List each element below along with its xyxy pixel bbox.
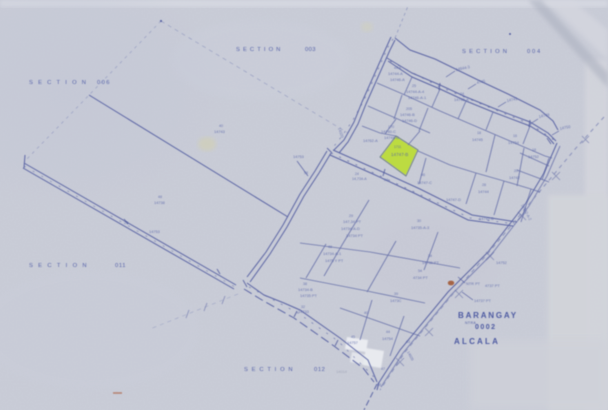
svg-text:SECTION: SECTION xyxy=(29,80,91,86)
svg-text:SECTION: SECTION xyxy=(462,49,510,55)
svg-text:30: 30 xyxy=(417,219,421,223)
svg-text:25: 25 xyxy=(412,84,416,88)
svg-text:44: 44 xyxy=(386,330,390,334)
svg-text:0002: 0002 xyxy=(475,324,497,331)
svg-text:46: 46 xyxy=(421,173,425,177)
svg-text:14734-A-1: 14734-A-1 xyxy=(323,251,341,256)
svg-text:14752: 14752 xyxy=(528,154,539,159)
svg-text:1711: 1711 xyxy=(394,145,401,149)
svg-text:205: 205 xyxy=(406,107,412,111)
svg-text:004: 004 xyxy=(527,49,542,55)
svg-text:14747-B: 14747-B xyxy=(391,152,408,157)
svg-text:1475 Y PT: 1475 Y PT xyxy=(325,258,344,263)
svg-text:14742-B: 14742-B xyxy=(479,216,494,221)
svg-text:28: 28 xyxy=(482,183,486,187)
svg-text:43: 43 xyxy=(406,340,410,344)
svg-text:24: 24 xyxy=(384,178,388,182)
svg-text:48: 48 xyxy=(158,195,162,199)
svg-text:47: 47 xyxy=(381,367,385,371)
svg-text:14735-A-3: 14735-A-3 xyxy=(411,225,429,230)
svg-text:14735 PT: 14735 PT xyxy=(300,293,317,298)
svg-text:38: 38 xyxy=(303,282,307,286)
svg-text:14762-A: 14762-A xyxy=(363,138,378,143)
svg-text:48: 48 xyxy=(377,383,381,387)
svg-text:14752: 14752 xyxy=(496,260,507,265)
svg-text:14747-C: 14747-C xyxy=(417,180,432,185)
svg-text:SECTION: SECTION xyxy=(236,47,283,53)
svg-text:14740-C: 14740-C xyxy=(381,129,396,134)
svg-text:14733: 14733 xyxy=(298,309,309,314)
svg-text:SECTION: SECTION xyxy=(244,367,296,373)
svg-text:NTR PT: NTR PT xyxy=(466,281,481,286)
svg-text:14745: 14745 xyxy=(472,137,483,142)
svg-text:40: 40 xyxy=(219,124,223,128)
svg-text:14742: 14742 xyxy=(509,175,520,180)
svg-text:14,734-A: 14,734-A xyxy=(352,177,367,181)
svg-text:1473C: 1473C xyxy=(390,298,402,303)
svg-text:14746-B: 14746-B xyxy=(400,112,415,117)
svg-text:14746-D: 14746-D xyxy=(402,118,417,123)
svg-text:003: 003 xyxy=(305,47,316,53)
svg-text:45: 45 xyxy=(351,335,355,339)
svg-text:16: 16 xyxy=(513,134,517,138)
svg-text:006: 006 xyxy=(97,80,111,86)
svg-text:18: 18 xyxy=(477,131,481,135)
svg-text:48: 48 xyxy=(328,245,332,249)
svg-text:24: 24 xyxy=(460,92,464,96)
svg-text:20: 20 xyxy=(514,169,518,173)
svg-text:14746-A: 14746-A xyxy=(454,97,469,102)
svg-text:147,34 PT: 147,34 PT xyxy=(343,219,362,224)
svg-text:14746-A-1: 14746-A-1 xyxy=(408,95,426,100)
svg-text:14743: 14743 xyxy=(214,129,225,134)
svg-text:14738: 14738 xyxy=(154,200,165,205)
svg-text:14753: 14753 xyxy=(149,229,160,234)
svg-text:4734 PT: 4734 PT xyxy=(413,275,428,280)
svg-text:29: 29 xyxy=(349,214,353,218)
svg-text:24: 24 xyxy=(355,172,359,176)
svg-text:14736 PT: 14736 PT xyxy=(422,260,439,265)
svg-text:14734-B: 14734-B xyxy=(298,287,313,292)
svg-text:14754: 14754 xyxy=(382,336,394,341)
svg-text:14744: 14744 xyxy=(478,189,490,194)
svg-text:40: 40 xyxy=(364,311,368,315)
svg-text:14744-A: 14744-A xyxy=(388,71,403,76)
svg-text:SECTION: SECTION xyxy=(29,263,92,269)
svg-text:4737 PT: 4737 PT xyxy=(485,283,500,288)
svg-text:ALCALA: ALCALA xyxy=(454,337,500,346)
svg-text:011: 011 xyxy=(115,263,126,269)
svg-text:54: 54 xyxy=(418,269,422,273)
svg-text:18: 18 xyxy=(532,148,536,152)
svg-text:14014: 14014 xyxy=(336,369,348,374)
svg-text:44 A: 44 A xyxy=(394,66,402,70)
svg-text:58: 58 xyxy=(304,171,308,175)
svg-text:012: 012 xyxy=(314,367,325,373)
svg-text:14747-D: 14747-D xyxy=(446,197,461,202)
svg-text:39: 39 xyxy=(394,292,398,296)
svg-text:14734 PT: 14734 PT xyxy=(346,233,363,238)
svg-text:14734-A-D: 14734-A-D xyxy=(341,226,360,231)
svg-text:14753: 14753 xyxy=(293,154,304,159)
svg-text:14744-D: 14744-D xyxy=(384,135,399,140)
svg-text:14754: 14754 xyxy=(508,140,520,145)
svg-text:34: 34 xyxy=(428,254,432,258)
svg-text:14757: 14757 xyxy=(347,340,358,345)
svg-text:14737 PT: 14737 PT xyxy=(474,298,491,303)
svg-text:14744-A-4: 14744-A-4 xyxy=(406,89,425,94)
svg-text:BARANGAY: BARANGAY xyxy=(458,311,518,320)
svg-text:14746-A: 14746-A xyxy=(390,77,405,82)
